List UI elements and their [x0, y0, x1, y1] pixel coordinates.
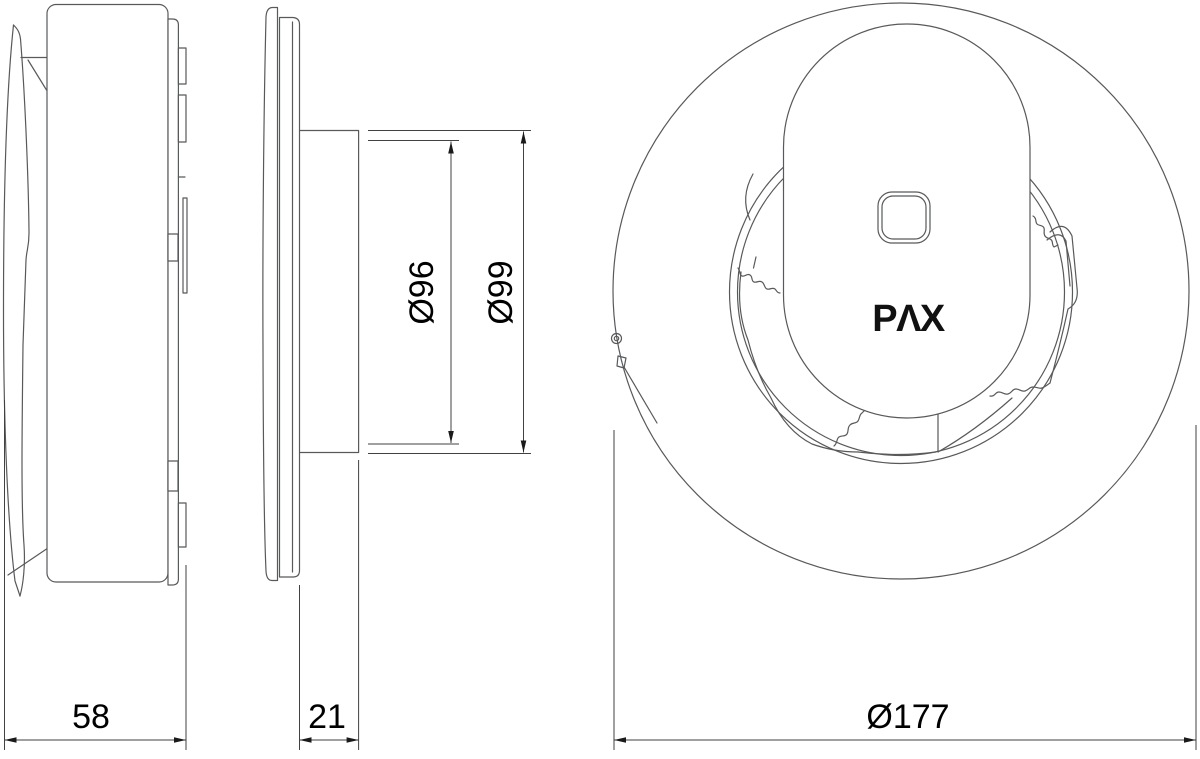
arrowhead-right: [174, 737, 186, 743]
arrowhead-right: [1184, 737, 1196, 743]
blade-tip-inner-edge: [1047, 235, 1070, 286]
oval-cover: [784, 24, 1031, 418]
mounting-clip: [178, 95, 186, 142]
dimension-flange-depth: 21: [300, 698, 359, 743]
plate-notch: [168, 234, 178, 261]
arrowhead-down: [448, 431, 454, 443]
arrowhead-down: [521, 441, 527, 453]
dimension-label-d96: Ø96: [403, 260, 441, 324]
dimension-duct-outer-diameter: Ø99: [482, 132, 526, 453]
front-grille-inner-edge: [14, 25, 30, 596]
dimension-duct-inner-diameter: Ø96: [403, 142, 454, 444]
blade-break-line: [1033, 216, 1058, 247]
arrowhead-left: [300, 737, 312, 743]
drawing-canvas: PΛX 58 21 Ø: [0, 0, 1200, 759]
front-ring-profile: [263, 8, 278, 581]
side-view: [4, 5, 188, 597]
grille-top-strut: [28, 60, 47, 90]
front-view: PΛX: [612, 3, 1190, 579]
arrowhead-left: [5, 737, 17, 743]
back-panel-profile: [280, 18, 300, 578]
pax-logo: PΛX: [872, 298, 946, 340]
mounting-plate: [168, 19, 178, 585]
dimension-label-58: 58: [72, 698, 110, 736]
blade-spur: [754, 257, 757, 268]
blade-break-line: [834, 411, 864, 446]
technical-drawing: PΛX 58 21 Ø: [0, 0, 1200, 759]
blade-break-line: [990, 383, 1050, 396]
dimension-body-depth: 58: [5, 698, 187, 743]
dimension-label-d177: Ø177: [866, 698, 949, 736]
arrowhead-up: [521, 132, 527, 144]
duct-spigot: [300, 131, 359, 453]
mounting-clip: [178, 503, 186, 547]
cable-tab: [183, 198, 187, 293]
dimension-label-21: 21: [308, 698, 346, 736]
front-grille-outer-edge: [4, 25, 21, 596]
fan-body-outline: [47, 5, 168, 583]
blade-break-line: [738, 268, 780, 293]
arrowhead-left: [614, 737, 626, 743]
arrowhead-right: [347, 737, 359, 743]
arrowhead-up: [448, 142, 454, 154]
dimension-front-diameter: Ø177: [614, 698, 1196, 743]
dimension-label-d99: Ø99: [482, 260, 520, 324]
profile-view: [263, 8, 359, 581]
plate-notch: [168, 461, 178, 491]
grille-bottom-strut: [8, 549, 47, 575]
mounting-clip: [178, 48, 186, 84]
